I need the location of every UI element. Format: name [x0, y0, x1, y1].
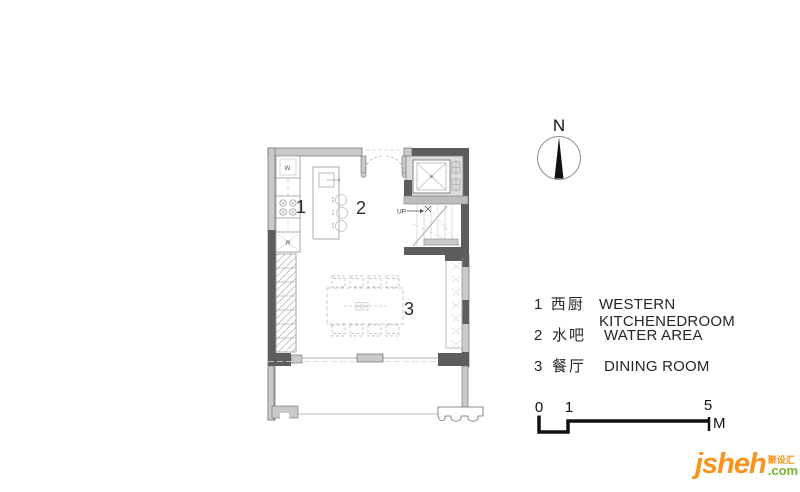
washer-label: W.: [285, 166, 292, 172]
north-label: N: [553, 116, 565, 135]
up-label: UP: [397, 209, 406, 216]
room-number-dining: 3: [404, 299, 414, 319]
room-number-water: 2: [356, 198, 366, 218]
fridge-box: R: [276, 232, 300, 252]
legend-chinese: 水吧: [552, 324, 604, 345]
jsheh-logo: jsheh 聚设汇 .com: [695, 451, 798, 477]
scale-tick-0: 0: [535, 399, 543, 416]
entry-double-door: [361, 150, 407, 178]
kitchen-counter: W. R: [276, 156, 300, 352]
staircase: UP: [397, 196, 468, 246]
stair-landing: [424, 239, 458, 245]
table-centerpiece: [344, 303, 386, 311]
legend-number: 2: [534, 327, 552, 344]
planter: [438, 407, 483, 421]
north-compass: N: [538, 116, 581, 180]
tall-cabinet: [276, 254, 296, 352]
balcony: [268, 366, 483, 421]
logo-stack: 聚设汇 .com: [768, 455, 798, 477]
legend-item-dining-room: 3 餐厅 DINING ROOM: [534, 355, 800, 386]
washer-box: W.: [276, 156, 300, 178]
balcony-notch: [280, 413, 289, 419]
scale-tick-1: 1: [565, 399, 573, 416]
room-number-kitchen: 1: [296, 197, 306, 217]
legend-item-kitchen: 1 西厨 WESTERN KITCHENEDROOM: [534, 293, 800, 324]
legend-english: DINING ROOM: [604, 358, 710, 375]
scale-bar: 0 1 5 M: [535, 397, 726, 432]
up-arrow: [420, 209, 424, 213]
elevator: [404, 156, 463, 198]
legend-chinese: 西厨: [551, 293, 599, 314]
fridge-label: R: [286, 241, 291, 247]
dining-table: [327, 288, 403, 324]
floor-plan-canvas: W. R: [0, 0, 800, 487]
scale-bar-line: [539, 416, 709, 433]
logo-wordmark: jsheh: [695, 451, 766, 477]
logo-tld: .com: [768, 465, 798, 477]
kitchen-island: [313, 167, 348, 239]
window-wall: [268, 353, 469, 366]
legend: 1 西厨 WESTERN KITCHENEDROOM 2 水吧 WATER AR…: [534, 293, 800, 386]
compass-needle: [555, 138, 564, 179]
legend-number: 1: [534, 296, 551, 313]
glazed-column: [445, 255, 462, 348]
floor-plan-svg: W. R: [0, 0, 800, 487]
scale-unit: M: [713, 415, 726, 432]
legend-english: WESTERN KITCHENEDROOM: [599, 296, 800, 330]
window-mullion: [357, 354, 383, 362]
legend-chinese: 餐厅: [552, 355, 604, 376]
legend-english: WATER AREA: [604, 327, 703, 344]
scale-tick-5: 5: [704, 397, 712, 414]
legend-number: 3: [534, 358, 552, 375]
